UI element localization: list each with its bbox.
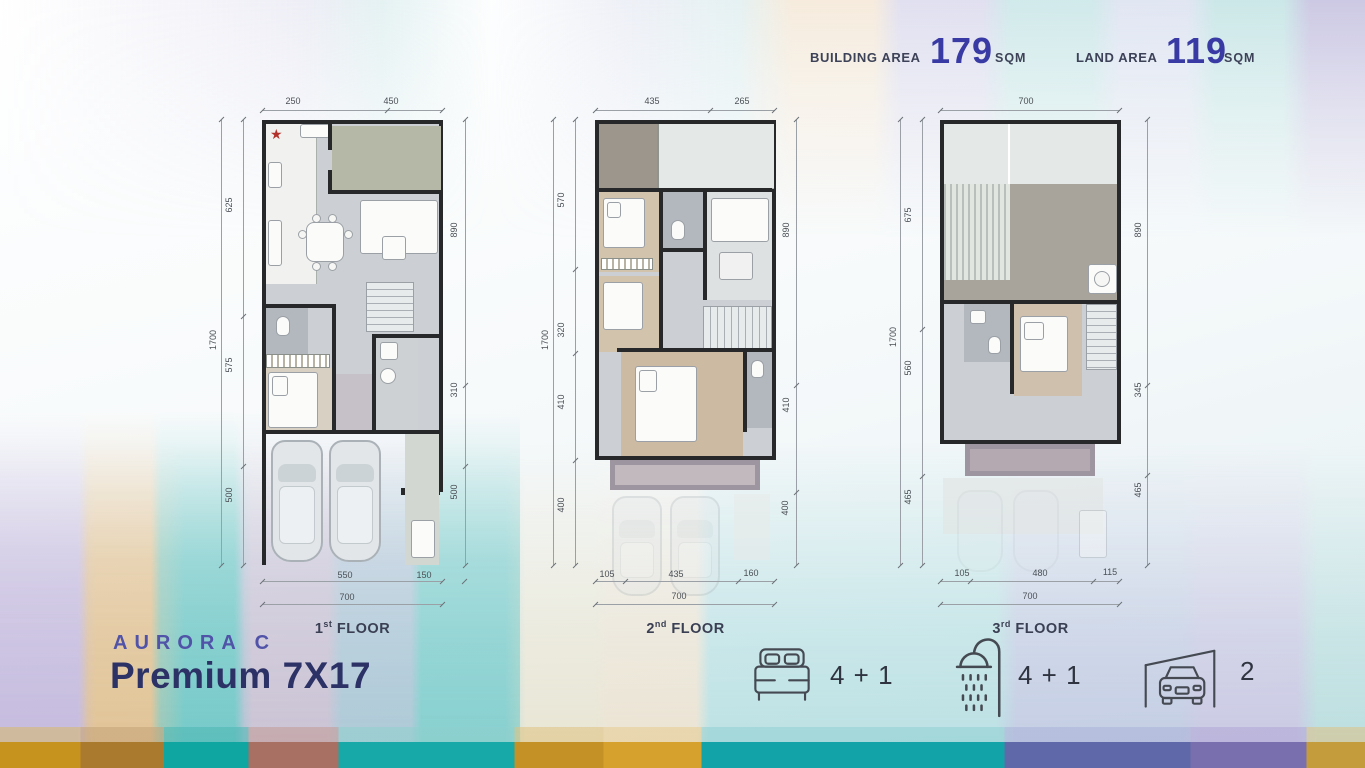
land-area-unit: SQM bbox=[1224, 51, 1255, 65]
background-band bbox=[0, 742, 1365, 768]
floorplan-1-outline: ★ bbox=[262, 120, 443, 434]
dim-label: 310 bbox=[447, 375, 461, 405]
land-area-label: LAND AREA bbox=[1076, 50, 1157, 65]
car-roof bbox=[337, 486, 373, 544]
dim-label: 480 bbox=[1025, 566, 1055, 580]
interior-wall bbox=[703, 192, 707, 300]
dining-table bbox=[306, 222, 344, 262]
dimension-line bbox=[796, 120, 797, 565]
dim-label: 700 bbox=[332, 590, 362, 604]
dining-chair bbox=[328, 262, 337, 271]
washer bbox=[380, 342, 398, 360]
dimension-line bbox=[262, 110, 443, 111]
dim-label: 500 bbox=[447, 477, 461, 507]
sink bbox=[970, 310, 986, 324]
dim-label: 105 bbox=[947, 566, 977, 580]
roof-divider bbox=[1008, 124, 1010, 184]
dim-label: 465 bbox=[1131, 475, 1145, 505]
dim-label: 400 bbox=[778, 493, 792, 523]
dim-label: 500 bbox=[222, 480, 236, 510]
dim-label: 410 bbox=[779, 390, 793, 420]
dim-label: 150 bbox=[409, 568, 439, 582]
project-series-title: AURORA C bbox=[113, 632, 276, 655]
bathroom-count: 4 + 1 bbox=[1018, 660, 1082, 691]
dining-chair bbox=[312, 262, 321, 271]
product-model-title: Premium 7X17 bbox=[110, 655, 371, 697]
kitchen-counter bbox=[268, 162, 282, 188]
porch-room-area bbox=[332, 126, 441, 190]
dim-label: 890 bbox=[1131, 215, 1145, 245]
pillow bbox=[639, 370, 657, 392]
dim-label: 570 bbox=[554, 185, 568, 215]
dimension-line bbox=[595, 581, 775, 582]
carport-count: 2 bbox=[1240, 656, 1255, 687]
dim-label: 550 bbox=[330, 568, 360, 582]
dimension-line bbox=[575, 120, 576, 565]
stairs bbox=[366, 282, 414, 332]
dimension-line bbox=[595, 604, 775, 605]
roof-area bbox=[657, 124, 774, 189]
dimension-line bbox=[1147, 120, 1148, 565]
roof-area bbox=[944, 124, 1117, 185]
shower-icon bbox=[952, 634, 1006, 720]
rug bbox=[719, 252, 753, 280]
water-tank-ghost bbox=[1079, 510, 1107, 558]
toilet bbox=[276, 316, 290, 336]
carport-wall bbox=[262, 434, 266, 565]
dim-label: 435 bbox=[661, 567, 691, 581]
dim-label: 450 bbox=[376, 94, 406, 108]
car-windshield bbox=[336, 464, 374, 482]
entrance-star-marker: ★ bbox=[270, 127, 283, 141]
floor-label-1: 1st FLOOR bbox=[262, 619, 443, 637]
toilet bbox=[751, 360, 764, 378]
dimension-line bbox=[465, 120, 466, 565]
floorplan-2nd-floor: 435 265 570 320 410 400 1700 890 410 400… bbox=[538, 88, 808, 668]
car bbox=[271, 440, 323, 562]
wardrobe bbox=[266, 354, 330, 368]
entry-porch-area bbox=[336, 374, 374, 430]
dimension-line bbox=[595, 110, 775, 111]
dim-label: 1700 bbox=[886, 322, 900, 352]
dim-label: 320 bbox=[554, 315, 568, 345]
wardrobe bbox=[601, 258, 653, 270]
interior-wall bbox=[372, 334, 376, 430]
car-windshield bbox=[278, 464, 316, 482]
dining-chair bbox=[312, 214, 321, 223]
balcony bbox=[610, 460, 760, 490]
pillow bbox=[272, 376, 288, 396]
toilet bbox=[988, 336, 1001, 354]
dim-label: 890 bbox=[779, 215, 793, 245]
interior-wall bbox=[266, 304, 336, 308]
roof-deck-area bbox=[599, 124, 657, 188]
land-area-value: 119 bbox=[1166, 30, 1227, 72]
dimension-line bbox=[940, 604, 1120, 605]
stove bbox=[300, 124, 330, 138]
floor-label-2: 2nd FLOOR bbox=[595, 619, 776, 637]
dim-label: 1700 bbox=[206, 325, 220, 355]
pillow bbox=[607, 202, 621, 218]
dim-label: 675 bbox=[901, 200, 915, 230]
dimension-line bbox=[940, 581, 1120, 582]
dim-label: 435 bbox=[637, 94, 667, 108]
stairs bbox=[1086, 304, 1117, 370]
dining-chair bbox=[298, 230, 307, 239]
dim-label: 105 bbox=[592, 567, 622, 581]
car-ghost bbox=[957, 490, 1003, 572]
interior-wall bbox=[663, 248, 703, 252]
dim-label: 560 bbox=[901, 353, 915, 383]
dim-label: 575 bbox=[222, 350, 236, 380]
dim-label: 400 bbox=[554, 490, 568, 520]
stairs bbox=[703, 306, 772, 352]
floorplan-3-outline bbox=[940, 120, 1121, 444]
dim-label: 700 bbox=[1015, 589, 1045, 603]
water-heater bbox=[380, 368, 396, 384]
sofa bbox=[711, 198, 769, 242]
interior-wall bbox=[328, 190, 443, 194]
dim-label: 465 bbox=[901, 482, 915, 512]
dining-chair bbox=[344, 230, 353, 239]
dim-label: 700 bbox=[664, 589, 694, 603]
coffee-table bbox=[382, 236, 406, 260]
washing-machine-door bbox=[1094, 271, 1110, 287]
balcony bbox=[965, 444, 1095, 476]
dimension-line bbox=[940, 110, 1120, 111]
slatted-deck bbox=[944, 184, 1010, 280]
interior-wall bbox=[328, 124, 332, 150]
dim-label: 890 bbox=[447, 215, 461, 245]
side-walkway-ghost bbox=[734, 494, 770, 560]
floorplan-3rd-floor: 700 675 560 465 1700 890 345 465 105 480… bbox=[883, 88, 1153, 668]
kitchen-counter bbox=[268, 220, 282, 266]
floorplan-2-outline bbox=[595, 120, 776, 460]
bed-icon bbox=[746, 646, 818, 706]
dimension-line bbox=[922, 120, 923, 565]
dim-label: 700 bbox=[1011, 94, 1041, 108]
car bbox=[329, 440, 381, 562]
brochure-page: BUILDING AREA 179 SQM LAND AREA 119 SQM … bbox=[0, 0, 1365, 768]
cushion bbox=[1024, 322, 1044, 340]
water-tank bbox=[411, 520, 435, 558]
car-garage-icon bbox=[1140, 640, 1220, 716]
building-area-unit: SQM bbox=[995, 51, 1026, 65]
dim-label: 345 bbox=[1131, 375, 1145, 405]
car-ghost bbox=[1013, 490, 1059, 572]
dim-label: 115 bbox=[1095, 565, 1125, 579]
building-area-label: BUILDING AREA bbox=[810, 50, 921, 65]
interior-wall bbox=[372, 334, 443, 338]
background-band-upper bbox=[0, 727, 1365, 742]
dim-label: 625 bbox=[222, 190, 236, 220]
bed bbox=[603, 282, 643, 330]
bathroom-area bbox=[663, 192, 703, 248]
bedroom-count: 4 + 1 bbox=[830, 660, 894, 691]
carport-wall bbox=[439, 434, 443, 492]
car-roof bbox=[279, 486, 315, 544]
floorplan-1st-floor: ★ bbox=[205, 88, 475, 668]
dimension-line bbox=[262, 604, 443, 605]
dimension-line bbox=[243, 120, 244, 565]
building-area-value: 179 bbox=[930, 30, 993, 72]
dim-label: 160 bbox=[736, 566, 766, 580]
dim-label: 265 bbox=[727, 94, 757, 108]
toilet bbox=[671, 220, 685, 240]
dim-label: 250 bbox=[278, 94, 308, 108]
dim-label: 1700 bbox=[538, 325, 552, 355]
dim-label: 410 bbox=[554, 387, 568, 417]
dining-chair bbox=[328, 214, 337, 223]
